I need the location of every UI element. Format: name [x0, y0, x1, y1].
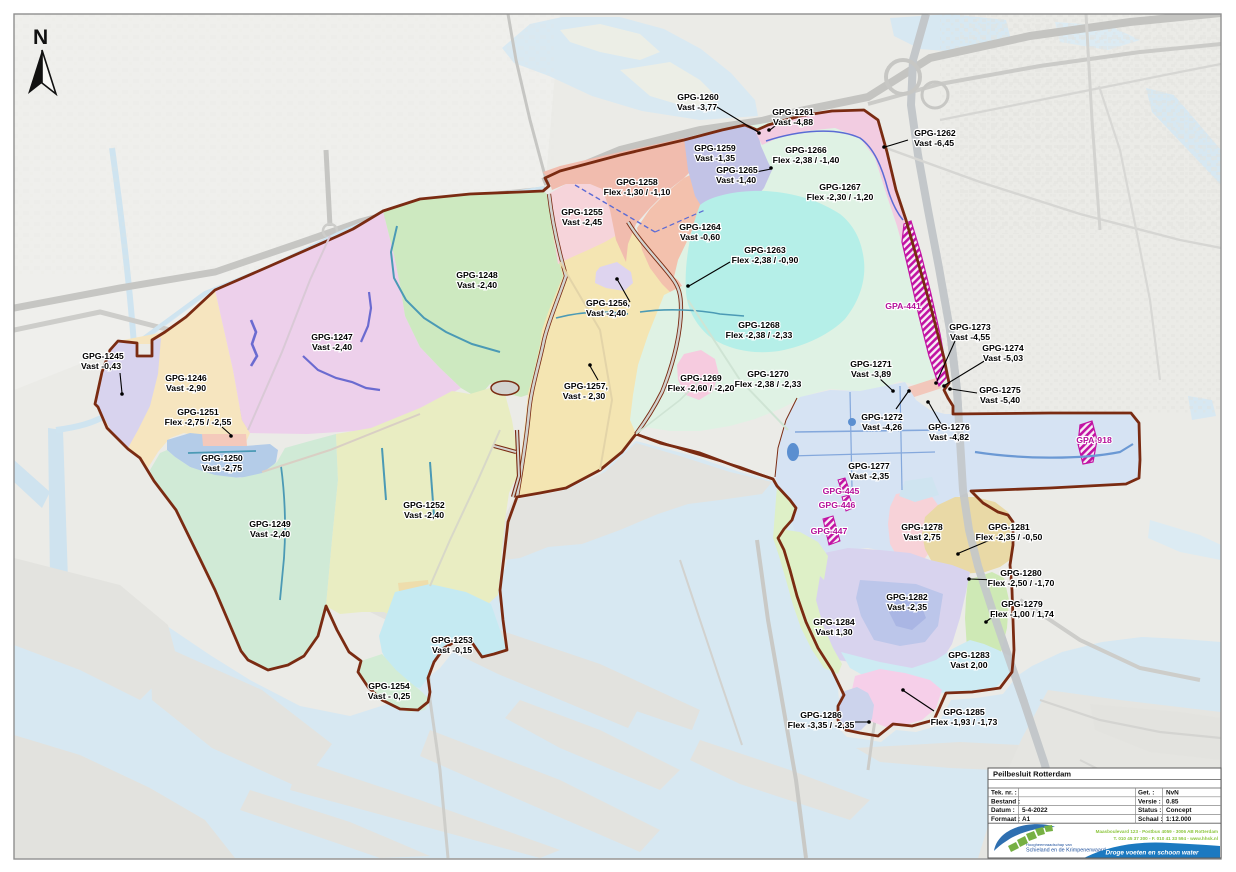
- svg-text:Vast -2,40: Vast -2,40: [250, 529, 290, 539]
- svg-text:Flex -1,00 / 1,74: Flex -1,00 / 1,74: [990, 609, 1054, 619]
- svg-text:Flex -2,50 / -1,70: Flex -2,50 / -1,70: [988, 578, 1055, 588]
- svg-text:Droge voeten en schoon water: Droge voeten en schoon water: [1105, 850, 1199, 857]
- svg-text:Vast -4,88: Vast -4,88: [773, 117, 813, 127]
- svg-text:GPG-1265: GPG-1265: [716, 165, 758, 175]
- svg-text:Hoogheemraadschap van: Hoogheemraadschap van: [1026, 842, 1072, 847]
- svg-text:GPA-918: GPA-918: [1076, 435, 1112, 445]
- svg-text:GPG-1248: GPG-1248: [456, 270, 498, 280]
- svg-text:Vast -3,89: Vast -3,89: [851, 369, 891, 379]
- svg-text:Formaat :: Formaat :: [991, 816, 1020, 823]
- svg-text:GPG-1286: GPG-1286: [800, 710, 842, 720]
- svg-text:Vast -5,03: Vast -5,03: [983, 353, 1023, 363]
- svg-text:GPG-1276: GPG-1276: [928, 422, 970, 432]
- svg-text:Vast - 0,25: Vast - 0,25: [368, 691, 411, 701]
- svg-text:GPG-1270: GPG-1270: [747, 369, 789, 379]
- svg-text:GPG-1258: GPG-1258: [616, 177, 658, 187]
- svg-text:GPG-1267: GPG-1267: [819, 182, 861, 192]
- svg-text:GPG-1256,: GPG-1256,: [586, 298, 630, 308]
- svg-text:GPG-1268: GPG-1268: [738, 320, 780, 330]
- svg-text:Vast -3,77: Vast -3,77: [677, 102, 717, 112]
- svg-text:Status :: Status :: [1138, 807, 1161, 814]
- svg-text:Schaal :: Schaal :: [1138, 816, 1163, 823]
- svg-text:GPG-1283: GPG-1283: [948, 650, 990, 660]
- svg-text:Vast -5,40: Vast -5,40: [980, 395, 1020, 405]
- svg-text:Schieland en de Krimpenerwaard: Schieland en de Krimpenerwaard: [1026, 848, 1106, 854]
- svg-text:Flex -2,75 / -2,55: Flex -2,75 / -2,55: [165, 417, 232, 427]
- svg-text:Vast -6,45: Vast -6,45: [914, 138, 954, 148]
- svg-text:0.85: 0.85: [1166, 798, 1179, 805]
- svg-text:GPG-1246: GPG-1246: [165, 373, 207, 383]
- svg-text:Vast -2,45: Vast -2,45: [562, 217, 602, 227]
- svg-text:GPG-1264: GPG-1264: [679, 222, 721, 232]
- svg-text:Vast -2,40: Vast -2,40: [312, 342, 352, 352]
- svg-text:Vast 2,75: Vast 2,75: [903, 532, 940, 542]
- svg-text:GPG-1260: GPG-1260: [677, 92, 719, 102]
- svg-text:GPG-1261: GPG-1261: [772, 107, 814, 117]
- svg-text:GPG-1250: GPG-1250: [201, 453, 243, 463]
- svg-text:GPG-1253: GPG-1253: [431, 635, 473, 645]
- svg-text:Vast -2,40: Vast -2,40: [457, 280, 497, 290]
- svg-text:GPG-1284: GPG-1284: [813, 617, 855, 627]
- svg-text:GPG-1245: GPG-1245: [82, 351, 124, 361]
- svg-text:Flex -3,35 / -2,35: Flex -3,35 / -2,35: [788, 720, 855, 730]
- svg-text:A1: A1: [1022, 816, 1031, 823]
- svg-text:Flex -2,60 / -2,20: Flex -2,60 / -2,20: [668, 383, 735, 393]
- svg-text:Get. :: Get. :: [1138, 790, 1154, 797]
- svg-text:GPG-1275: GPG-1275: [979, 385, 1021, 395]
- svg-text:GPG-1281: GPG-1281: [988, 522, 1030, 532]
- svg-text:GPG-1279: GPG-1279: [1001, 599, 1043, 609]
- svg-text:GPG-1266: GPG-1266: [785, 145, 827, 155]
- svg-text:Vast 1,30: Vast 1,30: [815, 627, 852, 637]
- svg-text:GPG-1273: GPG-1273: [949, 322, 991, 332]
- svg-text:Flex -2,35 / -0,50: Flex -2,35 / -0,50: [976, 532, 1043, 542]
- svg-text:Vast -2,90: Vast -2,90: [166, 383, 206, 393]
- svg-text:GPG-1257,: GPG-1257,: [564, 381, 608, 391]
- svg-text:GPG-1277: GPG-1277: [848, 461, 890, 471]
- svg-text:GPG-1252: GPG-1252: [403, 500, 445, 510]
- svg-text:Vast -1,35: Vast -1,35: [695, 153, 735, 163]
- svg-text:GPG-1249: GPG-1249: [249, 519, 291, 529]
- svg-text:5-4-2022: 5-4-2022: [1022, 807, 1048, 814]
- svg-text:Vast -4,82: Vast -4,82: [929, 432, 969, 442]
- svg-text:Vast -2,40: Vast -2,40: [404, 510, 444, 520]
- svg-text:Vast -4,55: Vast -4,55: [950, 332, 990, 342]
- svg-text:Flex -2,38 / -0,90: Flex -2,38 / -0,90: [732, 255, 799, 265]
- svg-text:GPG-1271: GPG-1271: [850, 359, 892, 369]
- svg-text:Flex -2,38 / -2,33: Flex -2,38 / -2,33: [726, 330, 793, 340]
- svg-text:N: N: [33, 26, 48, 49]
- svg-text:GPG-1269: GPG-1269: [680, 373, 722, 383]
- svg-text:Vast - 2,30: Vast - 2,30: [563, 391, 606, 401]
- svg-text:GPG-1280: GPG-1280: [1000, 568, 1042, 578]
- svg-text:Datum :: Datum :: [991, 807, 1015, 814]
- svg-text:GPG-1278: GPG-1278: [901, 522, 943, 532]
- svg-text:GPG-446: GPG-446: [819, 500, 856, 510]
- svg-text:GPG-1274: GPG-1274: [982, 343, 1024, 353]
- svg-text:GPG-447: GPG-447: [811, 526, 848, 536]
- svg-text:T. 010 45 37 300 - F. 010 41 3: T. 010 45 37 300 - F. 010 41 33 594 - ww…: [1113, 836, 1218, 841]
- svg-text:Vast -0,15: Vast -0,15: [432, 645, 472, 655]
- svg-text:Flex -2,38 / -2,33: Flex -2,38 / -2,33: [735, 379, 802, 389]
- svg-text:GPG-1251: GPG-1251: [177, 407, 219, 417]
- svg-text:GPG-1285: GPG-1285: [943, 707, 985, 717]
- svg-text:Vast -2,40: Vast -2,40: [586, 308, 626, 318]
- svg-text:Vast -2,75: Vast -2,75: [202, 463, 242, 473]
- svg-text:GPG-1259: GPG-1259: [694, 143, 736, 153]
- svg-text:GPG-1262: GPG-1262: [914, 128, 956, 138]
- svg-text:Flex -1,93 / -1,73: Flex -1,93 / -1,73: [931, 717, 998, 727]
- svg-text:Vast -0,60: Vast -0,60: [680, 232, 720, 242]
- svg-text:GPG-445: GPG-445: [823, 486, 860, 496]
- svg-text:Versie :: Versie :: [1138, 798, 1161, 805]
- svg-text:GPA-441: GPA-441: [885, 301, 921, 311]
- svg-text:Maasboulevard 123 - Postbus 40: Maasboulevard 123 - Postbus 4059 - 3006 …: [1096, 829, 1218, 834]
- svg-text:Vast -2,35: Vast -2,35: [849, 471, 889, 481]
- svg-text:Flex -2,30 / -1,20: Flex -2,30 / -1,20: [807, 192, 874, 202]
- svg-text:GPG-1282: GPG-1282: [886, 592, 928, 602]
- svg-text:GPG-1254: GPG-1254: [368, 681, 410, 691]
- svg-text:Vast -2,35: Vast -2,35: [887, 602, 927, 612]
- svg-text:GPG-1255: GPG-1255: [561, 207, 603, 217]
- svg-text:NvN: NvN: [1166, 790, 1179, 797]
- svg-text:Vast 2,00: Vast 2,00: [950, 660, 987, 670]
- svg-text:Peilbesluit Rotterdam: Peilbesluit Rotterdam: [993, 770, 1071, 779]
- svg-text:GPG-1272: GPG-1272: [861, 412, 903, 422]
- svg-text:Concept: Concept: [1166, 807, 1192, 814]
- svg-text:1:12.000: 1:12.000: [1166, 816, 1192, 823]
- svg-text:Vast -0,43: Vast -0,43: [81, 361, 121, 371]
- svg-text:GPG-1247: GPG-1247: [311, 332, 353, 342]
- svg-text:Vast -4,26: Vast -4,26: [862, 422, 902, 432]
- svg-text:Bestand :: Bestand :: [991, 798, 1020, 805]
- svg-text:Vast -1,40: Vast -1,40: [716, 175, 756, 185]
- svg-text:Tek. nr. :: Tek. nr. :: [991, 790, 1017, 797]
- svg-text:Flex -2,38 / -1,40: Flex -2,38 / -1,40: [773, 155, 840, 165]
- svg-text:Flex -1,30 / -1,10: Flex -1,30 / -1,10: [604, 187, 671, 197]
- svg-text:GPG-1263: GPG-1263: [744, 245, 786, 255]
